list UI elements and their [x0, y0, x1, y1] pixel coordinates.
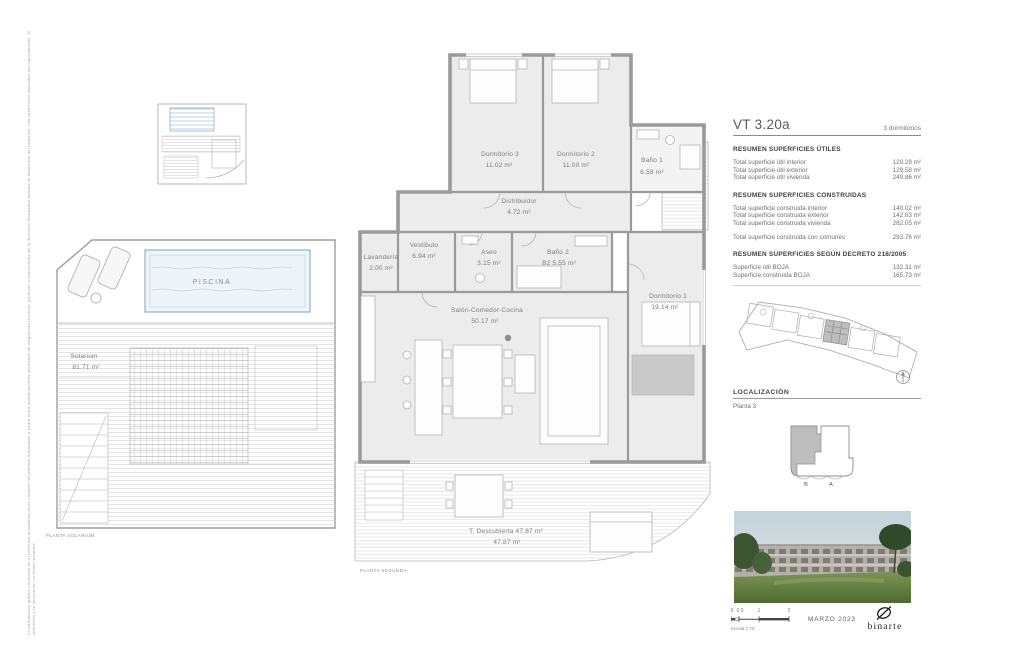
room-area-bano-2: B2 5.55 m² [542, 261, 576, 268]
terrace-area-line2: 47.87 m² [493, 540, 520, 547]
room-area-distribuidor: 4.72 m² [507, 210, 530, 217]
solarium-label: Solarium [70, 354, 97, 361]
section-heading-utiles: RESUMEN SUPERFICIES ÚTILES [733, 146, 921, 153]
section-heading-construidas: RESUMEN SUPERFICIES CONSTRUIDAS [733, 192, 921, 199]
scale-tick-1: 1 [758, 608, 761, 614]
room-area-dormitorio-2: 11.00 m² [563, 163, 590, 170]
row-label: Total superficie útil interior [733, 159, 806, 167]
terrace-area: 47.87 m² [516, 528, 543, 535]
planta-segunda-title: PLANTA SEGUNDA [360, 568, 407, 573]
section-divider [733, 285, 921, 286]
row-value: 132.31 m² [893, 264, 921, 272]
row-value: 129.58 m² [893, 167, 921, 175]
scale-tick-05: 0.5 [737, 608, 744, 614]
scale-text: escala 1:75 [731, 626, 755, 631]
row-value: 142.03 m² [893, 212, 921, 220]
row-label: Total superficie útil exterior [733, 167, 808, 175]
surface-row: Superficie construida BOJA165.73 m² [733, 272, 921, 280]
mini-solarium-keyplan-drawing [150, 100, 258, 192]
room-label-distribuidor: Distribuidor [501, 199, 536, 206]
solarium-area: 81.71 m² [72, 365, 99, 372]
room-label-bano-1: Baño 1 [641, 158, 663, 165]
surface-row: Total superficie construida exterior142.… [733, 212, 921, 220]
surface-row: Total superficie construida interior140.… [733, 205, 921, 213]
piscina-label: PISCINA [193, 279, 232, 286]
surface-row: Superficie útil BOJA132.31 m² [733, 264, 921, 272]
plan-sheet: La información gráfica contenida en el p… [0, 0, 1024, 657]
room-label-vestibulo: Vestíbulo [410, 243, 439, 250]
building-footprint-drawing [783, 418, 861, 488]
row-value: 165.73 m² [893, 272, 921, 280]
room-area-lavanderia: 2.00 m² [369, 266, 392, 273]
room-area-bano-1: 6.58 m² [640, 170, 663, 177]
unit-title-row: VT 3.20a 3 dormitorios [733, 117, 921, 136]
surface-row-comunes: Total superficie construida con comunes2… [733, 234, 921, 242]
row-value: 120.28 m² [893, 159, 921, 167]
section-heading-decreto: RESUMEN SUPERFICIES SEGÚN DECRETO 218/20… [733, 251, 921, 258]
unit-type: 3 dormitorios [883, 125, 921, 132]
surface-summary-panel: VT 3.20a 3 dormitorios RESUMEN SUPERFICI… [733, 117, 921, 286]
room-area-salon-comedor-cocina: 50.17 m² [471, 319, 498, 326]
room-label-dormitorio-3: Dormitorio 3 [481, 152, 519, 159]
row-label: Total superficie útil vivienda [733, 174, 810, 182]
row-value: 140.02 m² [893, 205, 921, 213]
room-label-salon-comedor-cocina: Salón-Comedor-Cocina [451, 308, 523, 315]
block-letter-b: B [804, 482, 808, 488]
surface-row: Total superficie útil interior120.28 m² [733, 159, 921, 167]
row-value: 249.86 m² [893, 174, 921, 182]
terrace-name: T. Descubierta [469, 528, 513, 535]
scale-tick-2: 2 [788, 608, 791, 614]
row-label: Total superficie construida exterior [733, 212, 829, 220]
surface-row: Total superficie útil vivienda249.86 m² [733, 174, 921, 182]
sheet-date: MARZO 2023 [808, 616, 856, 623]
surface-row: Total superficie útil exterior129.58 m² [733, 167, 921, 175]
room-label-dormitorio-2: Dormitorio 2 [557, 152, 595, 159]
terrace-label: T. Descubierta 47.87 m² [469, 529, 543, 536]
row-label: Total superficie construida interior [733, 205, 827, 213]
localizacion-floor: Planta 3 [733, 403, 921, 410]
row-value: 293.76 m² [893, 234, 921, 242]
site-plan-drawing [733, 290, 923, 390]
room-label-lavanderia: Lavandería [364, 255, 399, 262]
room-area-dormitorio-1: 19.14 m² [651, 305, 678, 312]
row-value: 282.05 m² [893, 220, 921, 228]
room-label-aseo: Aseo [481, 250, 497, 257]
solarium-plan-drawing [50, 228, 345, 538]
row-label: Total superficie construida con comunes [733, 234, 845, 242]
planta-solarium-title: PLANTA SOLARIUM [46, 533, 95, 538]
surface-row: Total superficie construida vivienda282.… [733, 220, 921, 228]
localizacion-block: LOCALIZACIÓN Planta 3 [733, 389, 921, 410]
side-disclaimer-text: La información gráfica contenida en el p… [26, 20, 38, 635]
row-label: Superficie útil BOJA [733, 264, 789, 272]
room-label-bano-2: Baño 2 [547, 250, 569, 257]
row-label: Superficie construida BOJA [733, 272, 810, 280]
unit-code: VT 3.20a [733, 117, 790, 132]
binarte-logo-text: binarte [868, 622, 903, 632]
room-area-aseo: 3.15 m² [477, 261, 500, 268]
block-letter-a: A [829, 482, 833, 488]
row-label: Total superficie construida vivienda [733, 220, 831, 228]
building-photo [734, 511, 911, 603]
binarte-logo-icon [866, 605, 902, 621]
scale-tick-0: 0 [731, 608, 734, 614]
scale-bar [731, 614, 793, 624]
room-label-dormitorio-1: Dormitorio 1 [649, 294, 687, 301]
localizacion-heading: LOCALIZACIÓN [733, 389, 921, 399]
room-area-vestibulo: 6.94 m² [412, 254, 435, 261]
room-area-dormitorio-3: 11.02 m² [486, 163, 513, 170]
north-arrow-icon [897, 371, 910, 384]
